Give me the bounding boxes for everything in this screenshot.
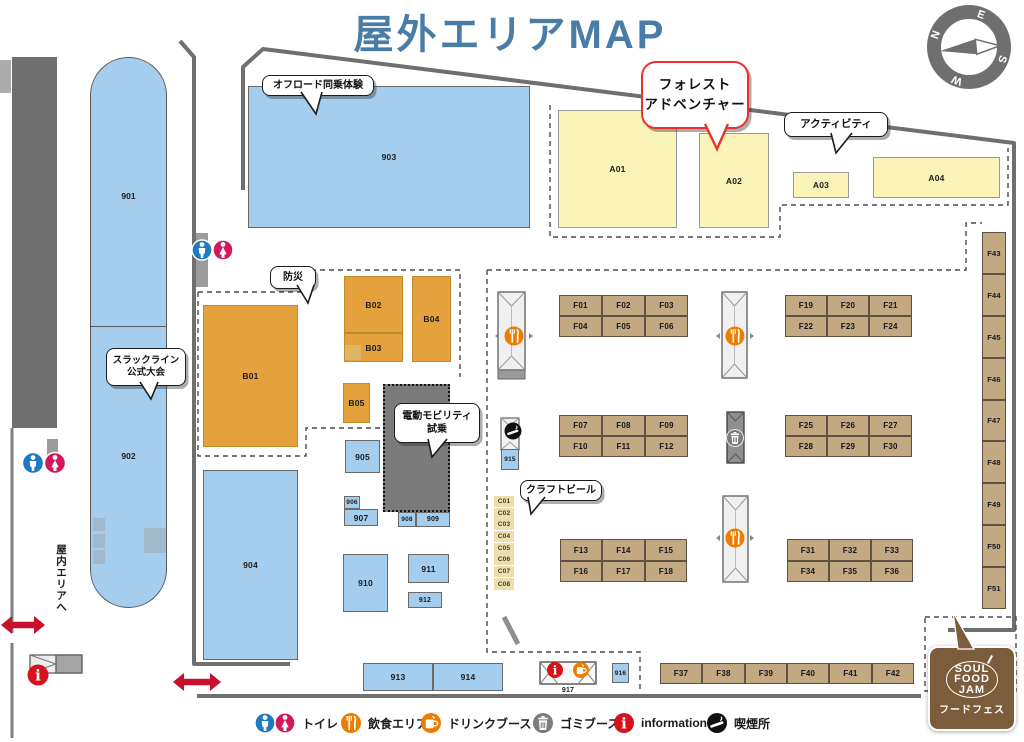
legend-drink: ドリンクブース: [420, 712, 531, 734]
bubble-disaster: 防災: [270, 266, 316, 289]
patch-area: [345, 345, 361, 360]
booth-F34: F34: [787, 561, 829, 582]
booth-F02: F02: [602, 295, 645, 316]
booth-C03: C03: [494, 519, 514, 530]
booth-F15: F15: [645, 539, 687, 561]
booth-913: 913: [363, 663, 433, 691]
booth-F39: F39: [745, 663, 787, 684]
booth-F06: F06: [645, 316, 688, 337]
outdoor-area-map: i: [0, 0, 1024, 742]
booth-F33: F33: [871, 539, 913, 561]
booth-905: 905: [345, 440, 380, 473]
food-icon: [340, 712, 362, 734]
booth-908: 908: [398, 512, 416, 527]
capsule-patch: [93, 550, 105, 564]
booth-F04: F04: [559, 316, 602, 337]
page-title: 屋外エリアMAP: [280, 2, 740, 60]
booth-916: 916: [612, 663, 629, 683]
booth-C05: C05: [494, 543, 514, 554]
bubble-activity: アクティビティ: [784, 112, 888, 137]
booth-F07: F07: [559, 415, 602, 436]
booth-F31: F31: [787, 539, 829, 561]
booth-F38: F38: [702, 663, 745, 684]
booth-F05: F05: [602, 316, 645, 337]
capsule-patch: [144, 528, 166, 553]
booth-F12: F12: [645, 436, 688, 457]
booth-F10: F10: [559, 436, 602, 457]
booth-F14: F14: [602, 539, 645, 561]
booth-B04: B04: [412, 276, 451, 362]
booth-F41: F41: [829, 663, 872, 684]
soul-food-jam-logo: SOUL FOOD JAM フードフェス: [928, 646, 1016, 731]
bubble-craft-beer: クラフトビール: [520, 480, 602, 501]
booth-F37: F37: [660, 663, 702, 684]
booth-C06: C06: [494, 554, 514, 565]
booth-F40: F40: [787, 663, 829, 684]
booth-F13: F13: [560, 539, 602, 561]
booth-F36: F36: [871, 561, 913, 582]
booth-F32: F32: [829, 539, 871, 561]
booth-910: 910: [343, 554, 388, 612]
booth-F35: F35: [829, 561, 871, 582]
booth-F47: F47: [982, 400, 1006, 441]
booth-903: 903: [248, 86, 530, 228]
area-divider: [91, 326, 166, 327]
booth-F46: F46: [982, 358, 1006, 400]
booth-C02: C02: [494, 508, 514, 519]
booth-A03: A03: [793, 172, 849, 198]
booth-915: 915: [501, 449, 519, 470]
booth-F19: F19: [785, 295, 827, 316]
drink-icon: [420, 712, 442, 734]
booth-F27: F27: [869, 415, 912, 436]
booth-C01: C01: [494, 496, 514, 507]
booth-F42: F42: [872, 663, 914, 684]
booth-F45: F45: [982, 316, 1006, 358]
bubble-slackline: スラックライン 公式大会: [106, 348, 186, 386]
booth-C04: C04: [494, 531, 514, 542]
legend-trash: ゴミブース: [532, 712, 619, 734]
bubble-mobility: 電動モビリティ 試乗: [394, 403, 480, 443]
booth-F24: F24: [869, 316, 912, 337]
smoking-icon: [706, 712, 728, 734]
legend-food: 飲食エリア: [340, 712, 428, 734]
booth-909: 909: [416, 512, 450, 527]
trash-icon: [532, 712, 554, 734]
toilet-icon: [254, 712, 296, 734]
booth-F23: F23: [827, 316, 869, 337]
legend-smoking: 喫煙所: [706, 712, 770, 734]
booth-C08: C08: [494, 578, 514, 590]
logo-caption: フードフェス: [939, 701, 1005, 716]
booth-907: 907: [344, 509, 378, 526]
booth-F11: F11: [602, 436, 645, 457]
booth-F20: F20: [827, 295, 869, 316]
booth-914: 914: [433, 663, 503, 691]
booth-F22: F22: [785, 316, 827, 337]
booth-F03: F03: [645, 295, 688, 316]
booth-F16: F16: [560, 561, 602, 582]
booth-917: 917: [556, 685, 580, 695]
straw-icon: [987, 655, 993, 664]
area-901-902: 901 902: [90, 57, 167, 608]
booth-F44: F44: [982, 274, 1006, 316]
area-label: 901: [91, 191, 166, 201]
bubble-forest-adventure: フォレスト アドベンチャー: [641, 61, 749, 129]
booth-B01: B01: [203, 305, 298, 447]
indoor-exit-label: 屋内エリアへ: [54, 544, 69, 613]
legend-toilet: トイレ: [254, 712, 338, 734]
capsule-patch: [93, 518, 105, 531]
booth-F51: F51: [982, 567, 1006, 609]
info-icon: [613, 712, 635, 734]
booth-906: 906: [344, 496, 360, 509]
area-label: 902: [91, 451, 166, 461]
capsule-patch: [93, 534, 105, 548]
logo-oval: SOUL FOOD JAM: [946, 661, 998, 698]
legend-information: information: [613, 712, 707, 734]
booth-F28: F28: [785, 436, 827, 457]
booth-F01: F01: [559, 295, 602, 316]
booth-F43: F43: [982, 232, 1006, 274]
booth-F25: F25: [785, 415, 827, 436]
booth-C07: C07: [494, 566, 514, 577]
booth-B05: B05: [343, 383, 370, 423]
booth-F50: F50: [982, 525, 1006, 567]
booth-F30: F30: [869, 436, 912, 457]
booth-911: 911: [408, 554, 449, 583]
booth-F17: F17: [602, 561, 645, 582]
booth-A02: A02: [699, 133, 769, 228]
booth-F18: F18: [645, 561, 687, 582]
booth-A04: A04: [873, 157, 1000, 198]
booth-F21: F21: [869, 295, 912, 316]
booth-F29: F29: [827, 436, 869, 457]
booth-F08: F08: [602, 415, 645, 436]
booth-F09: F09: [645, 415, 688, 436]
booth-904: 904: [203, 470, 298, 660]
booth-912: 912: [408, 592, 442, 608]
booth-F26: F26: [827, 415, 869, 436]
booth-B02: B02: [344, 276, 403, 333]
bubble-offroad: オフロード同乗体験: [262, 75, 374, 96]
booth-F48: F48: [982, 441, 1006, 483]
booth-F49: F49: [982, 483, 1006, 525]
